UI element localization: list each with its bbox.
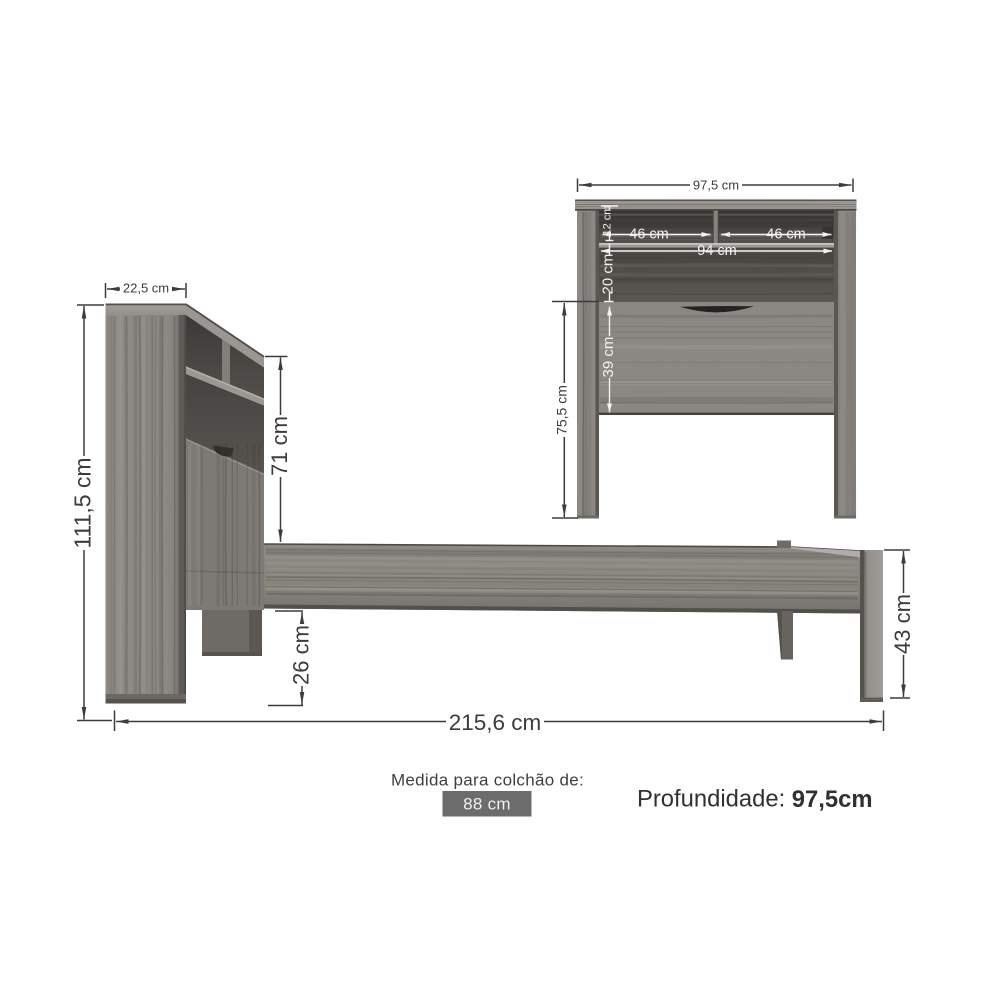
svg-text:94 cm: 94 cm: [697, 243, 737, 259]
svg-text:71 cm: 71 cm: [267, 416, 292, 476]
svg-text:22,5 cm: 22,5 cm: [123, 281, 169, 296]
svg-text:Profundidade: 97,5cm: Profundidade: 97,5cm: [637, 786, 873, 813]
svg-text:12 cm: 12 cm: [602, 206, 614, 236]
svg-text:111,5 cm: 111,5 cm: [70, 457, 96, 548]
svg-text:75,5 cm: 75,5 cm: [554, 385, 570, 435]
svg-text:215,6 cm: 215,6 cm: [449, 710, 542, 735]
svg-text:46 cm: 46 cm: [629, 227, 669, 243]
svg-text:88 cm: 88 cm: [463, 794, 511, 813]
svg-text:43 cm: 43 cm: [890, 594, 915, 654]
svg-text:20 cm: 20 cm: [600, 254, 617, 295]
svg-text:Medida para colchão de:: Medida para colchão de:: [391, 771, 584, 790]
svg-text:97,5 cm: 97,5 cm: [693, 178, 739, 193]
svg-text:46 cm: 46 cm: [766, 227, 806, 243]
svg-text:26 cm: 26 cm: [289, 625, 314, 685]
svg-text:39 cm: 39 cm: [600, 337, 617, 378]
